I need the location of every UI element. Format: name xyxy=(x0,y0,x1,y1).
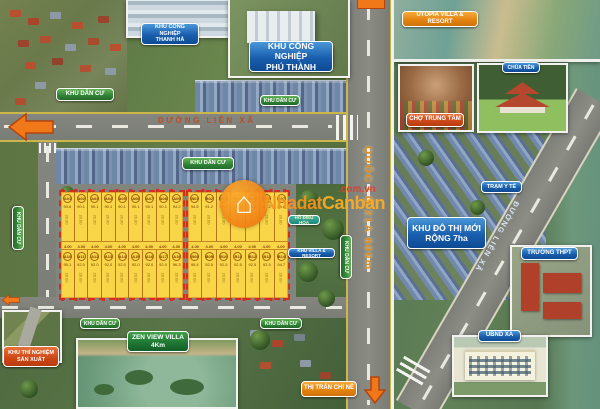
label-residential-area: KHU DÂN CƯ xyxy=(12,206,24,250)
plot-width-dimensions: 4.004.004.004.004.004.004.004.004.00 xyxy=(61,241,183,250)
hall-facade xyxy=(465,350,535,380)
plot-depth-dimension: 20.00 xyxy=(65,214,70,224)
plot-area: 91.2 xyxy=(234,204,242,209)
plot-id: A13 xyxy=(104,252,113,261)
plot-area: 90.1 xyxy=(118,204,126,209)
plot-area: 94.7 xyxy=(277,262,285,267)
arrow-left-icon xyxy=(2,292,20,308)
plot-area: 92.5 xyxy=(205,262,213,267)
plot-row: B0194.520.00B0291.220.00B0391.220.00B049… xyxy=(188,192,288,241)
tree xyxy=(418,150,434,166)
plot-area: 92.0 xyxy=(145,262,153,267)
plot-depth-dimension: 20.00 xyxy=(221,214,226,224)
plot-id: B09 xyxy=(205,252,214,261)
plot-cell: A0490.120.00 xyxy=(102,192,116,241)
plot-width-dimension: 4.00 xyxy=(259,242,273,249)
plot-depth-dimension: 20.00 xyxy=(65,272,70,282)
plot-area: 93.8 xyxy=(277,204,285,209)
plot-id: A07 xyxy=(145,194,154,203)
tree xyxy=(300,190,318,208)
label-medical-station: TRẠM Y TẾ xyxy=(481,181,522,193)
plot-area: 92.0 xyxy=(91,262,99,267)
plot-id: A09 xyxy=(172,194,181,203)
plot-id: B13 xyxy=(262,252,271,261)
factory-building xyxy=(247,11,315,43)
road-name-lien-xa: ĐƯỜNG LIÊN XÃ xyxy=(158,116,256,125)
label-commune-hall: UBND XÃ xyxy=(478,330,521,342)
plot-cell: A1292.020.00 xyxy=(88,250,102,298)
plot-area: 92.0 xyxy=(104,262,112,267)
plot-id: A16 xyxy=(145,252,154,261)
plot-cell: A1192.020.00 xyxy=(75,250,89,298)
plot-id: B05 xyxy=(248,194,257,203)
label-utopia-resort: UTOPIA VILLA & RESORT xyxy=(402,11,478,27)
label-residential-area: KHU DÂN CƯ xyxy=(260,318,302,329)
plot-cell: A0193.620.00 xyxy=(61,192,75,241)
plot-width-dimension: 4.00 xyxy=(170,242,184,249)
photo-commune-hall xyxy=(452,335,548,397)
plot-depth-dimension: 20.00 xyxy=(147,214,152,224)
plot-area: 93.6 xyxy=(63,204,71,209)
plot-cell: B0391.220.00 xyxy=(217,192,231,241)
plot-area: 90.1 xyxy=(77,204,85,209)
panel-divider xyxy=(391,0,394,409)
plot-depth-dimension: 20.00 xyxy=(250,214,255,224)
plot-id: A06 xyxy=(131,194,140,203)
plot-depth-dimension: 20.00 xyxy=(79,214,84,224)
plot-depth-dimension: 20.00 xyxy=(174,214,179,224)
label-regulating-lake: HỒ ĐIỀU HÒA xyxy=(288,215,320,225)
plot-block-a: A0193.620.00A0290.120.00A0390.120.00A049… xyxy=(61,192,183,298)
lake-island xyxy=(94,384,114,395)
plot-id: A14 xyxy=(118,252,127,261)
label-high-school: TRƯỜNG THPT xyxy=(521,247,578,260)
plot-cell: B0194.520.00 xyxy=(188,192,202,241)
plot-depth-dimension: 20.00 xyxy=(79,272,84,282)
plot-row: B0895.420.00B0992.520.00B1092.520.00B119… xyxy=(188,250,288,298)
plot-id: B10 xyxy=(219,252,228,261)
plot-id: B08 xyxy=(190,252,199,261)
hall-windows xyxy=(469,356,531,376)
plot-block-b: B0194.520.00B0291.220.00B0391.220.00B049… xyxy=(188,192,288,298)
plot-width-dimension: 4.00 xyxy=(202,242,216,249)
plot-depth-dimension: 20.00 xyxy=(120,214,125,224)
school-building xyxy=(521,263,538,311)
plot-depth-dimension: 20.00 xyxy=(221,272,226,282)
plot-cell: B0895.420.00 xyxy=(188,250,202,298)
plot-cell: A1896.320.00 xyxy=(170,250,183,298)
plot-cell: A1095.120.00 xyxy=(61,250,75,298)
lake-island xyxy=(170,379,204,395)
crosswalk xyxy=(336,115,358,140)
plot-id: B12 xyxy=(248,252,257,261)
plot-width-dimension: 4.00 xyxy=(217,242,231,249)
plot-id: A08 xyxy=(159,194,168,203)
plot-width-dimensions: 4.004.004.004.004.004.004.00 xyxy=(188,241,288,250)
plot-cell: A0994.220.00 xyxy=(170,192,183,241)
plot-id: B02 xyxy=(205,194,214,203)
plot-area: 92.0 xyxy=(159,262,167,267)
arrow-left-icon xyxy=(8,112,54,142)
plot-depth-dimension: 20.00 xyxy=(264,272,269,282)
plot-cell: A0290.120.00 xyxy=(75,192,89,241)
plot-depth-dimension: 20.00 xyxy=(279,214,284,224)
plot-depth-dimension: 20.00 xyxy=(133,272,138,282)
plot-id: A10 xyxy=(63,252,72,261)
plot-cell: A0790.120.00 xyxy=(143,192,157,241)
plot-width-dimension: 4.00 xyxy=(75,242,89,249)
plot-area: 94.2 xyxy=(173,204,181,209)
plot-depth-dimension: 20.00 xyxy=(106,214,111,224)
plot-depth-dimension: 20.00 xyxy=(174,272,179,282)
label-residential-area: KHU DÂN CƯ xyxy=(340,235,352,279)
road-centerline xyxy=(2,306,344,309)
plot-width-dimension: 4.00 xyxy=(156,242,170,249)
plot-area: 90.1 xyxy=(91,204,99,209)
temple-body xyxy=(500,107,545,113)
plot-id: B11 xyxy=(233,252,242,261)
plot-depth-dimension: 20.00 xyxy=(120,272,125,282)
tree xyxy=(470,200,485,215)
plot-depth-dimension: 20.00 xyxy=(250,272,255,282)
plot-id: A01 xyxy=(63,194,72,203)
plot-area: 92.0 xyxy=(132,262,140,267)
plot-row: A1095.120.00A1192.020.00A1292.020.00A139… xyxy=(61,250,183,298)
plot-id: A02 xyxy=(77,194,86,203)
plot-cell: B1392.520.00 xyxy=(260,250,274,298)
plot-area: 95.4 xyxy=(191,262,199,267)
plot-area: 95.1 xyxy=(63,262,71,267)
plot-depth-dimension: 20.00 xyxy=(161,272,166,282)
plot-area: 91.2 xyxy=(220,204,228,209)
label-experimental-zone: KHU THÍ NGHIỆM SẢN XUẤT xyxy=(3,346,59,367)
label-residential-area: KHU DÂN CƯ xyxy=(182,157,234,170)
plot-cell: A1492.020.00 xyxy=(116,250,130,298)
label-villa-resort: KHU VILLA & RESORT xyxy=(288,248,335,258)
label-residential-area: KHU DÂN CƯ xyxy=(56,88,114,101)
plot-cell: B1292.520.00 xyxy=(246,250,260,298)
label-zen-view-villa: ZEN VIEW VILLA 4Km xyxy=(127,331,189,352)
plot-cell: B0992.520.00 xyxy=(202,250,216,298)
lake-island xyxy=(125,370,153,385)
plot-depth-dimension: 20.00 xyxy=(133,214,138,224)
plot-depth-dimension: 20.00 xyxy=(235,214,240,224)
crosswalk xyxy=(39,143,57,153)
plot-width-dimension: 4.00 xyxy=(129,242,143,249)
plot-area: 92.0 xyxy=(77,262,85,267)
plot-cell: B1494.720.00 xyxy=(275,250,288,298)
plot-area: 92.5 xyxy=(263,262,271,267)
plot-depth-dimension: 20.00 xyxy=(92,272,97,282)
plot-area: 91.2 xyxy=(249,204,257,209)
plot-id: A05 xyxy=(118,194,127,203)
label-residential-area: KHU DÂN CƯ xyxy=(260,95,300,106)
plot-id: A18 xyxy=(172,252,181,261)
road-name-quoc-lo-21a: QUỐC LỘ 21A 600m xyxy=(362,146,374,284)
plot-width-dimension: 4.00 xyxy=(88,242,102,249)
plot-cell: A1392.020.00 xyxy=(102,250,116,298)
photo-utopia-resort xyxy=(394,0,600,62)
plot-cell: A0690.120.00 xyxy=(129,192,143,241)
plot-width-dimension: 4.00 xyxy=(188,242,202,249)
plot-id: B03 xyxy=(219,194,228,203)
label-industrial-park-phu-thanh: KHU CÔNG NGHIỆP PHÚ THÀNH xyxy=(249,41,333,72)
plot-depth-dimension: 20.00 xyxy=(264,214,269,224)
tree xyxy=(20,380,38,398)
plot-depth-dimension: 20.00 xyxy=(92,214,97,224)
plot-cell: B0591.220.00 xyxy=(246,192,260,241)
plot-cell: A1692.020.00 xyxy=(143,250,157,298)
school-building xyxy=(543,302,580,320)
temple-roof xyxy=(505,82,540,94)
plot-id: A04 xyxy=(104,194,113,203)
plot-depth-dimension: 20.00 xyxy=(235,272,240,282)
plot-area: 94.5 xyxy=(191,204,199,209)
plot-cell: A1592.020.00 xyxy=(129,250,143,298)
plot-width-dimension: 4.00 xyxy=(245,242,259,249)
photo-tien-pagoda xyxy=(477,63,568,133)
plot-id: A11 xyxy=(77,252,86,261)
tree xyxy=(250,330,270,350)
village-roofs xyxy=(10,10,21,17)
plot-area: 92.5 xyxy=(249,262,257,267)
label-tien-pagoda: CHÙA TIÊN xyxy=(502,62,540,73)
plot-id: B14 xyxy=(277,252,286,261)
plot-depth-dimension: 20.00 xyxy=(147,272,152,282)
plot-width-dimension: 4.00 xyxy=(274,242,288,249)
plot-row: A0193.620.00A0290.120.00A0390.120.00A049… xyxy=(61,192,183,241)
plot-cell: A1792.020.00 xyxy=(157,250,171,298)
plot-area: 96.3 xyxy=(173,262,181,267)
label-chi-ne-town: THỊ TRẤN CHI NÊ xyxy=(301,381,357,397)
plot-area: 92.0 xyxy=(118,262,126,267)
plot-area: 91.2 xyxy=(205,204,213,209)
plot-cell: B0291.220.00 xyxy=(202,192,216,241)
plot-area: 92.5 xyxy=(234,262,242,267)
plot-depth-dimension: 20.00 xyxy=(192,272,197,282)
plot-area: 92.5 xyxy=(220,262,228,267)
temple-roof xyxy=(495,93,551,108)
plot-area: 90.1 xyxy=(132,204,140,209)
label-new-urban-area: KHU ĐÔ THỊ MỚI RỘNG 7ha xyxy=(407,217,486,249)
plot-area: 90.1 xyxy=(159,204,167,209)
tree xyxy=(298,262,318,282)
school-building xyxy=(543,273,580,292)
label-industrial-park-thanh-ha: KHU CÔNG NGHIỆP THANH HÀ xyxy=(141,23,199,45)
plot-depth-dimension: 20.00 xyxy=(207,272,212,282)
plot-cell: B1092.520.00 xyxy=(217,250,231,298)
plot-id: B06 xyxy=(262,194,271,203)
label-residential-area: KHU DÂN CƯ xyxy=(80,318,120,329)
plot-cell: A0390.120.00 xyxy=(88,192,102,241)
plot-cell: B0793.820.00 xyxy=(275,192,288,241)
plot-depth-dimension: 20.00 xyxy=(106,272,111,282)
plot-area: 90.1 xyxy=(145,204,153,209)
plot-width-dimension: 4.00 xyxy=(61,242,75,249)
real-estate-map: ĐƯỜNG LIÊN XÃ QUỐC LỘ 21A 600m ĐƯỜNG LIÊ… xyxy=(0,0,600,409)
plot-depth-dimension: 20.00 xyxy=(207,214,212,224)
plot-depth-dimension: 20.00 xyxy=(161,214,166,224)
plot-width-dimension: 4.00 xyxy=(102,242,116,249)
tree xyxy=(318,290,335,307)
plot-id: B01 xyxy=(190,194,199,203)
road-centerline xyxy=(46,146,49,314)
arrow-down-icon xyxy=(363,376,387,404)
plot-width-dimension: 4.00 xyxy=(231,242,245,249)
plot-width-dimension: 4.00 xyxy=(142,242,156,249)
plot-id: B04 xyxy=(233,194,242,203)
plot-cell: B0491.220.00 xyxy=(231,192,245,241)
plot-id: A12 xyxy=(90,252,99,261)
plot-cell: B0691.220.00 xyxy=(260,192,274,241)
plot-id: A15 xyxy=(131,252,140,261)
plot-id: A03 xyxy=(90,194,99,203)
plot-area: 90.1 xyxy=(104,204,112,209)
plot-cell: B1192.520.00 xyxy=(231,250,245,298)
plot-cell: A0890.120.00 xyxy=(157,192,171,241)
plot-depth-dimension: 20.00 xyxy=(279,272,284,282)
plot-cell: A0590.120.00 xyxy=(116,192,130,241)
plot-id: A17 xyxy=(159,252,168,261)
plot-area: 91.2 xyxy=(263,204,271,209)
plot-id: B07 xyxy=(277,194,286,203)
arrow-up-icon xyxy=(357,0,385,9)
plot-depth-dimension: 20.00 xyxy=(192,214,197,224)
plot-width-dimension: 4.00 xyxy=(115,242,129,249)
label-central-market: CHỢ TRUNG TÂM xyxy=(406,113,464,127)
